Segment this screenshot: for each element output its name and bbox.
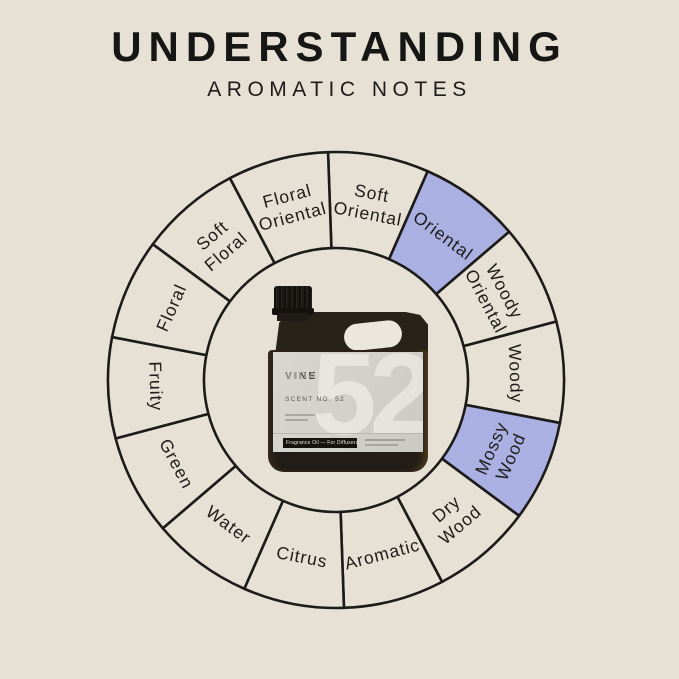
poster: UNDERSTANDING AROMATIC NOTES SoftOrienta… (0, 0, 679, 679)
wheel-segment-label: Woody (505, 344, 527, 404)
brand-light: VIDA (285, 370, 318, 382)
label-scent-line: SCENT NO. 52 (285, 396, 345, 403)
bottle-label: 52 VINEVIDA SCENT NO. 52 Fragrance Oil —… (273, 352, 423, 452)
label-microtext-line (285, 414, 315, 416)
wheel-segment-label-group: Woody (505, 344, 527, 404)
wheel-segment-label-group: Fruity (145, 361, 167, 411)
label-badge: Fragrance Oil — For Diffusers (283, 438, 357, 448)
label-divider (273, 433, 423, 434)
wheel-segment-label: Fruity (145, 361, 167, 411)
label-microtext-line (285, 419, 308, 421)
bottle-neck (277, 313, 309, 321)
product-bottle: 52 VINEVIDA SCENT NO. 52 Fragrance Oil —… (268, 286, 428, 478)
label-microtext-line (365, 444, 398, 446)
label-microtext-line (365, 439, 405, 441)
